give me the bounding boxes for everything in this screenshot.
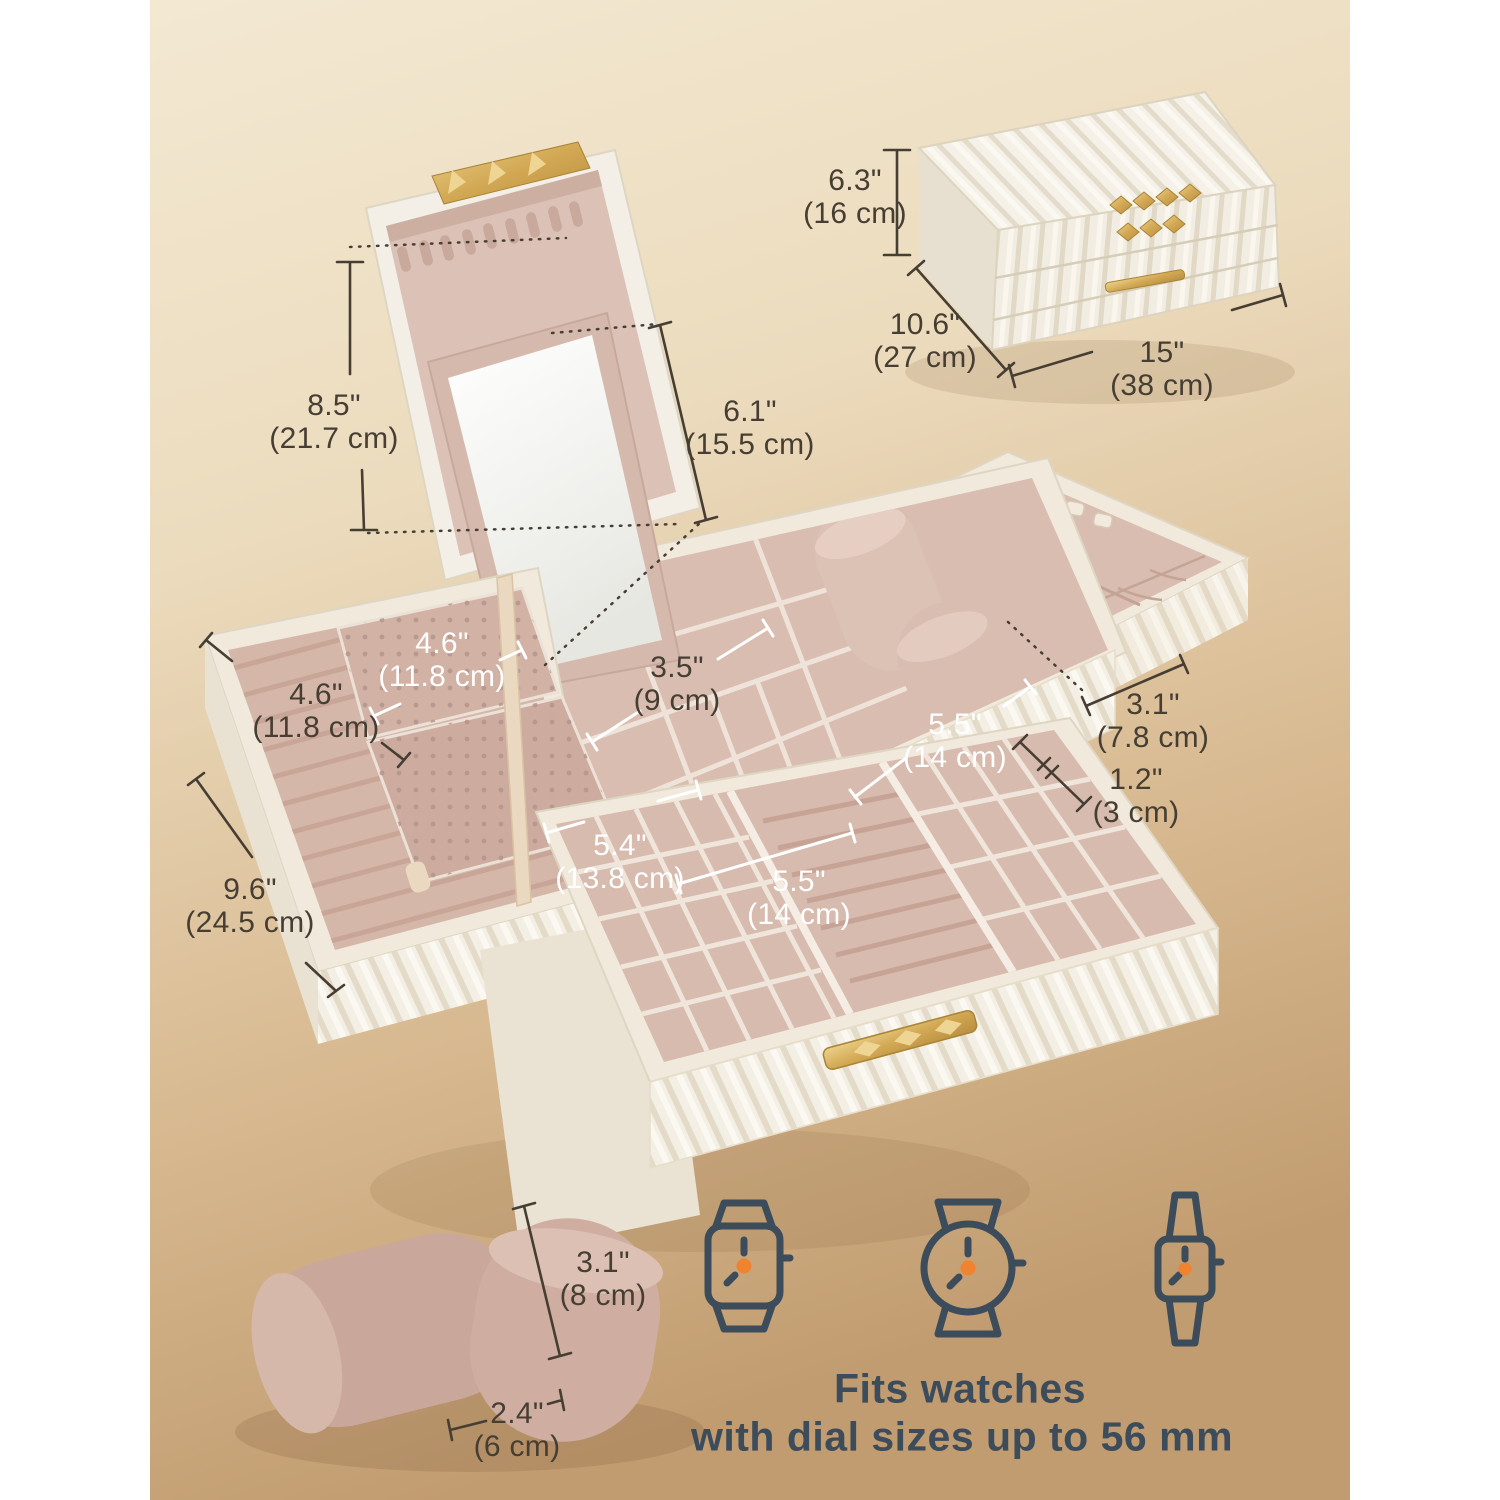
- dim-lid-height-label: 8.5"(21.7 cm): [269, 389, 398, 455]
- dim-mirror-height-label: 6.1"(15.5 cm): [685, 395, 814, 461]
- product-illustration: [0, 0, 1500, 1500]
- dim-closed-height-label: 6.3"(16 cm): [803, 164, 907, 230]
- dim-pillow-diameter-label: 2.4"(6 cm): [474, 1397, 561, 1463]
- dim-closed-depth-label: 10.6"(27 cm): [873, 308, 977, 374]
- caption-line1: Fits watches: [834, 1366, 1086, 1413]
- dim-earring-flap-label: 4.6"(11.8 cm): [378, 627, 505, 693]
- dim-watch-area-label: 5.5"(14 cm): [903, 708, 1007, 774]
- dim-middle-compartment-label: 3.5"(9 cm): [634, 651, 721, 717]
- dim-drawer-left-label: 5.4"(13.8 cm): [555, 829, 684, 895]
- dim-left-tray-label: 4.6"(11.8 cm): [252, 678, 379, 744]
- infographic-canvas: 6.3"(16 cm) 10.6"(27 cm) 15"(38 cm) 8.5"…: [0, 0, 1500, 1500]
- dim-right-tray-label: 3.1"(7.8 cm): [1097, 688, 1209, 754]
- caption-line2: with dial sizes up to 56 mm: [691, 1414, 1233, 1461]
- dim-gap-label: 1.2"(3 cm): [1093, 763, 1180, 829]
- dim-closed-width-label: 15"(38 cm): [1110, 336, 1214, 402]
- dim-pillow-height-label: 3.1"(8 cm): [560, 1246, 647, 1312]
- dim-drawer-middle-label: 5.5"(14 cm): [747, 865, 851, 931]
- dim-box-depth-label: 9.6"(24.5 cm): [185, 873, 314, 939]
